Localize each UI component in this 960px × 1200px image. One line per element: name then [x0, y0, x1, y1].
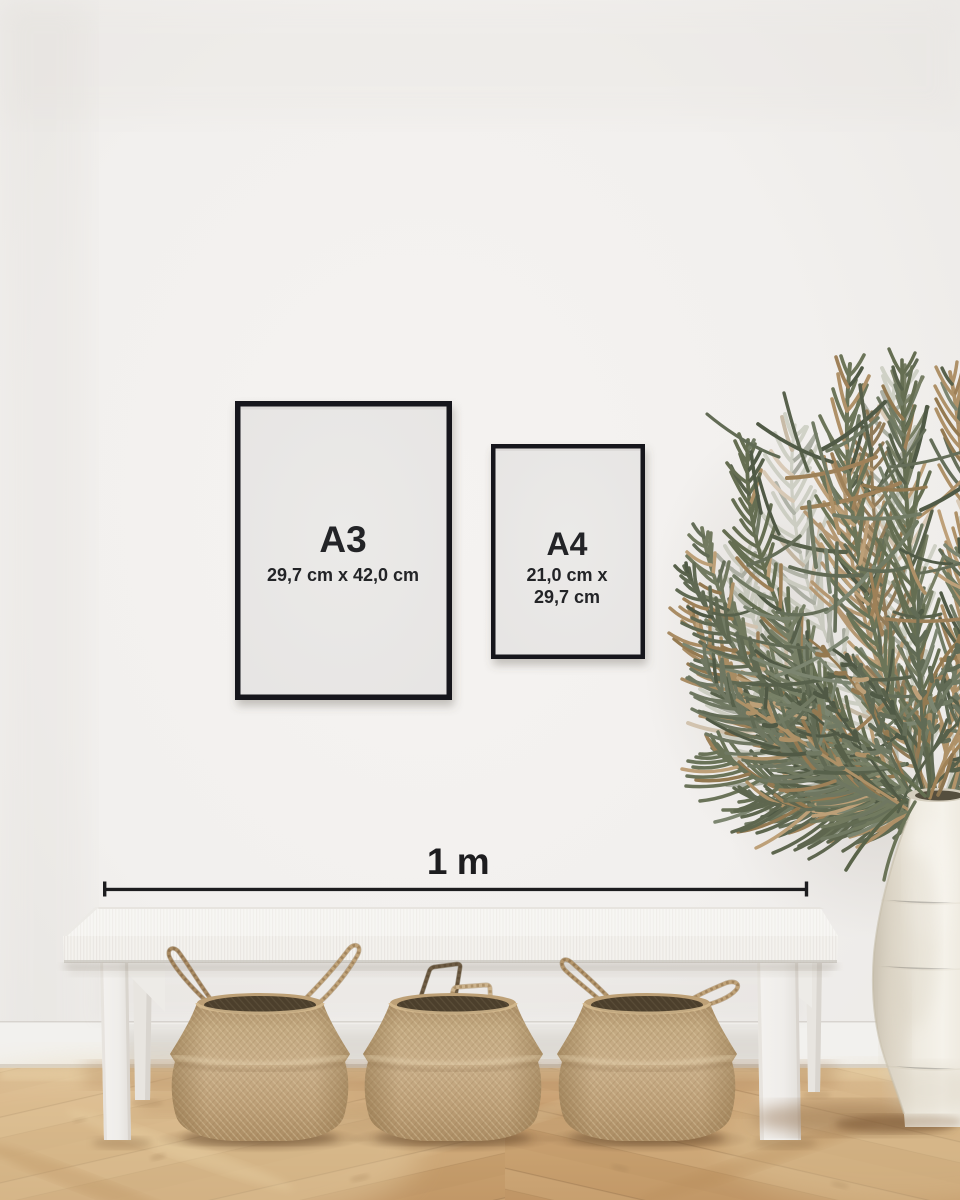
svg-text:A3: A3	[319, 519, 366, 560]
svg-text:1 m: 1 m	[427, 841, 489, 882]
svg-text:29,7 cm: 29,7 cm	[534, 587, 600, 607]
svg-text:29,7 cm x 42,0 cm: 29,7 cm x 42,0 cm	[267, 565, 419, 585]
svg-text:21,0 cm x: 21,0 cm x	[526, 565, 607, 585]
svg-text:A4: A4	[547, 526, 588, 562]
